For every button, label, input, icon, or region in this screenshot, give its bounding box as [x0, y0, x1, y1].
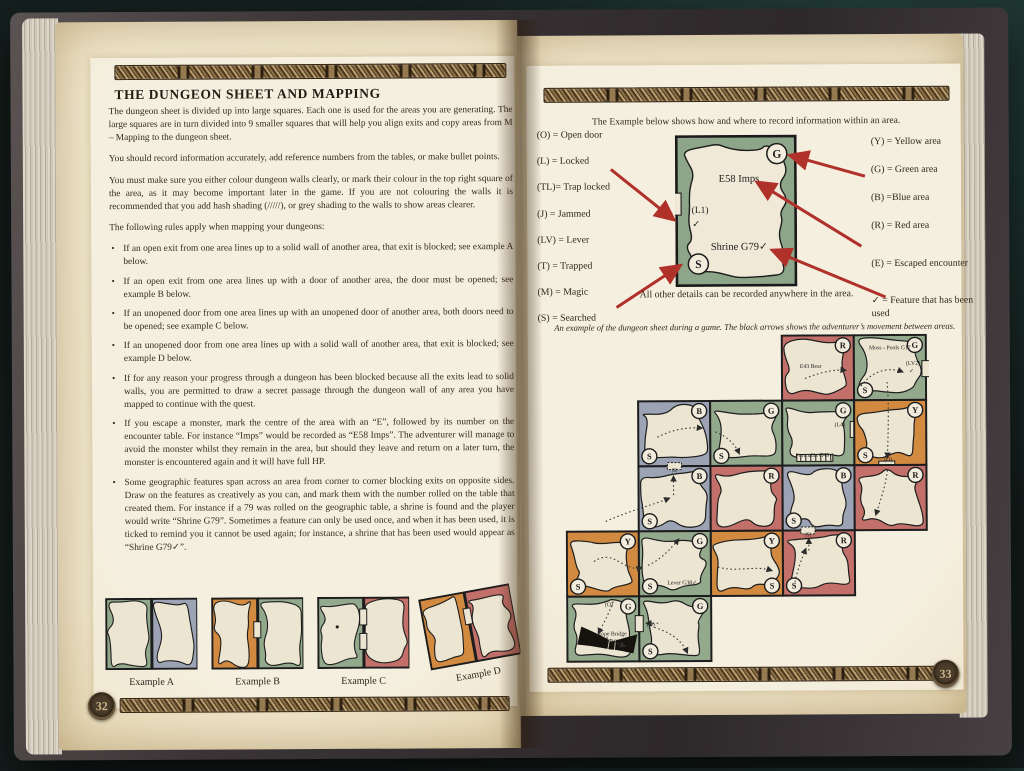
rule-bullet: If an unopened door from one area lines … — [110, 338, 514, 366]
paragraph: The dungeon sheet is divided up into lar… — [109, 104, 513, 146]
svg-text:G: G — [696, 536, 703, 546]
svg-text:Y: Y — [912, 405, 918, 415]
svg-text:|S|: |S| — [805, 532, 811, 538]
svg-text:G: G — [768, 406, 775, 416]
page-number-left: 32 — [88, 692, 116, 720]
svg-text:S: S — [791, 516, 796, 526]
svg-text:G: G — [840, 405, 847, 415]
diagram-caption: All other details can be recorded anywhe… — [637, 288, 857, 302]
svg-text:B: B — [697, 471, 703, 481]
rule-bullet: If for any reason your progress through … — [110, 370, 514, 412]
example-figure: Example B — [211, 597, 303, 687]
example-figure: Example A — [105, 598, 197, 688]
svg-text:(LV2): (LV2) — [906, 360, 920, 367]
svg-text:S: S — [863, 385, 868, 395]
svg-text:Y: Y — [769, 536, 775, 546]
svg-text:R: R — [768, 471, 775, 481]
svg-text:S: S — [648, 581, 653, 591]
example-figure: Example C — [317, 597, 409, 687]
map-area-5-1: G(O)Rope BridgeG18 — [567, 596, 639, 661]
example-figure-map — [211, 597, 303, 669]
svg-text:S: S — [648, 646, 653, 656]
map-area-2-3: GS — [710, 401, 782, 466]
locked-pointer-arrow — [611, 169, 673, 219]
map-area-4-3: YS — [711, 531, 783, 596]
svg-text:G: G — [697, 601, 704, 611]
rule-bullet: If an open exit from one area lines up t… — [109, 241, 513, 269]
body-text: The dungeon sheet is divided up into lar… — [109, 104, 515, 562]
svg-text:G18: G18 — [607, 639, 617, 645]
map-area-4-4: RS|S| — [783, 527, 855, 596]
green-area-pointer-arrow — [791, 155, 865, 176]
rule-bullet: If you escape a monster, mark the centre… — [110, 416, 514, 471]
dungeon-sheet-map: RE43 BearGSMoss - Pools G17(LV2)✓BSGSG(L… — [565, 334, 931, 664]
paragraph-list: The dungeon sheet is divided up into lar… — [109, 104, 514, 214]
examples-row: Example AExample BExample CExample D — [105, 596, 517, 688]
svg-text:✓: ✓ — [909, 369, 914, 375]
map-area-1-5: GSMoss - Pools G17(LV2)✓ — [854, 335, 930, 400]
ornamental-border-bottom-right-page — [547, 666, 935, 683]
svg-text:Y: Y — [625, 536, 631, 546]
page-number-right: 33 — [931, 660, 959, 688]
ornamental-border-top-left-page — [114, 63, 506, 80]
map-area-5-2: GS(O) — [635, 596, 711, 661]
paragraph: You should record information accurately… — [109, 151, 513, 166]
svg-text:S: S — [576, 582, 581, 592]
svg-text:Lever G38✓: Lever G38✓ — [667, 580, 697, 586]
svg-text:R: R — [840, 340, 847, 350]
svg-text:B: B — [841, 470, 847, 480]
svg-text:Rope Bridge: Rope Bridge — [597, 631, 627, 637]
svg-text:G: G — [911, 340, 918, 350]
svg-text:S: S — [647, 451, 652, 461]
rules-intro: The following rules apply when mapping y… — [109, 220, 513, 235]
open-book: THE DUNGEON SHEET AND MAPPING The dungeo… — [0, 0, 1024, 771]
svg-text:B: B — [696, 406, 702, 416]
example-label: Example A — [106, 677, 198, 688]
svg-text:(O): (O) — [605, 601, 613, 608]
example-figure-map — [317, 597, 409, 669]
rule-bullet: Some geographic features span across an … — [110, 475, 514, 556]
map-area-2-4: G(L4)Portcullis G49✓ — [782, 400, 858, 465]
svg-text:S: S — [863, 450, 868, 460]
example-figure-map — [105, 598, 197, 670]
ornamental-border-bottom-left-page — [120, 696, 510, 713]
map-area-2-5: YS(O) — [854, 400, 926, 469]
svg-text:S: S — [647, 516, 652, 526]
rule-bullet: If an unopened door from one area lines … — [110, 306, 514, 334]
map-area-3-2: BS|S| — [638, 462, 710, 531]
svg-text:S: S — [770, 581, 775, 591]
svg-text:R: R — [912, 470, 919, 480]
map-area-3-4: BS — [782, 465, 854, 530]
map-area-3-5: R — [854, 465, 926, 530]
rules-bullet-list: If an open exit from one area lines up t… — [109, 241, 515, 555]
map-area-2-2: BS — [638, 401, 710, 466]
page-title: THE DUNGEON SHEET AND MAPPING — [114, 86, 380, 103]
map-area-1-4: RE43 Bear — [782, 335, 854, 400]
paragraph: You must make sure you either colour dun… — [109, 173, 513, 215]
map-area-4-2: GSLever G38✓ — [639, 531, 711, 596]
svg-text:(L4): (L4) — [835, 421, 845, 428]
escaped-pointer-arrow — [758, 182, 861, 247]
svg-text:(O): (O) — [884, 456, 892, 463]
example-label: Example C — [318, 676, 410, 687]
svg-text:R: R — [841, 535, 848, 545]
book-gutter-shadow — [495, 20, 545, 748]
svg-text:|S|: |S| — [672, 468, 678, 474]
svg-text:Portcullis G49✓: Portcullis G49✓ — [796, 453, 835, 459]
example-label: Example B — [212, 676, 304, 687]
map-area-3-3: R — [710, 466, 782, 531]
map-area-4-1: YS — [567, 531, 639, 596]
svg-text:E43 Bear: E43 Bear — [800, 364, 822, 370]
rule-bullet: If an open exit from one area lines up w… — [109, 274, 513, 302]
svg-text:Moss - Pools G17: Moss - Pools G17 — [869, 345, 911, 351]
svg-text:S: S — [719, 451, 724, 461]
ornamental-border-top-right-page — [543, 86, 949, 103]
svg-text:(O): (O) — [647, 621, 655, 628]
svg-text:G: G — [625, 601, 632, 611]
